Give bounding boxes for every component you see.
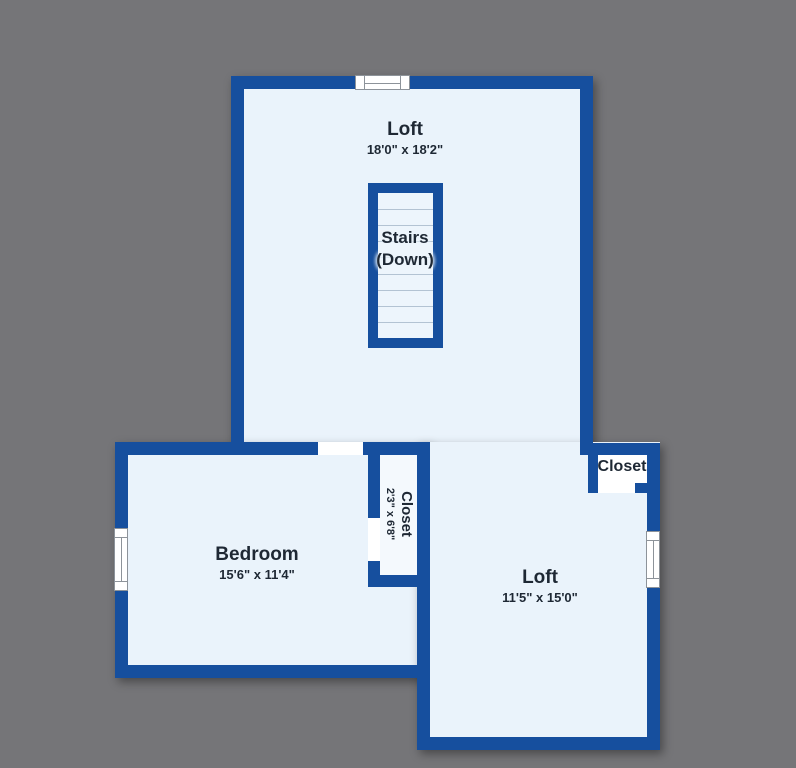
- window-cap-line: [647, 578, 659, 579]
- window-cap-line: [115, 581, 127, 582]
- bedroom-north-wall: [115, 442, 428, 455]
- window-pane-line: [364, 83, 401, 84]
- top-loft-label: Loft 18'0" x 18'2": [305, 118, 505, 158]
- door-opening-bedroom-closet: [368, 518, 380, 561]
- window-cap-line: [400, 76, 401, 89]
- bedroom-name: Bedroom: [157, 543, 357, 566]
- window-symbol-north: [355, 75, 410, 90]
- stair-tread-line: [378, 209, 433, 210]
- window-cap-line: [364, 76, 365, 89]
- window-pane-line: [653, 540, 654, 579]
- bedroom-closet-name: Closet: [397, 464, 415, 564]
- window-cap-line: [115, 537, 127, 538]
- bedroom-rightloft-divider-wall: [417, 442, 430, 750]
- stair-tread-line: [378, 274, 433, 275]
- bedroom-south-wall: [115, 665, 430, 678]
- stairs-label: Stairs (Down): [345, 227, 465, 271]
- top-loft-west-wall: [231, 76, 244, 455]
- window-cap-line: [647, 540, 659, 541]
- bedroom-closet-dimensions: 2'3" x 6'8": [383, 464, 397, 564]
- top-loft-name: Loft: [305, 118, 505, 141]
- window-symbol-bedroom-west: [114, 528, 128, 591]
- door-opening-corner-closet: [598, 483, 635, 493]
- stair-tread-line: [378, 225, 433, 226]
- stair-tread-line: [378, 306, 433, 307]
- top-loft-east-wall: [580, 76, 593, 455]
- right-loft-dimensions: 11'5" x 15'0": [440, 589, 640, 606]
- floor-plan: Loft 18'0" x 18'2" Stairs (Down) Bedroom…: [0, 0, 796, 768]
- top-loft-north-wall: [231, 76, 593, 89]
- right-loft-name: Loft: [440, 566, 640, 589]
- right-loft-south-wall: [417, 737, 660, 750]
- bedroom-dimensions: 15'6" x 11'4": [157, 566, 357, 583]
- window-symbol-loft-east: [646, 531, 660, 588]
- corner-closet-label: Closet: [572, 457, 672, 476]
- bedroom-closet-label: Closet 2'3" x 6'8": [381, 464, 415, 564]
- stair-tread-line: [378, 290, 433, 291]
- door-opening-loft-to-bedroom: [318, 442, 363, 455]
- window-pane-line: [121, 537, 122, 582]
- stairs-label-line2: (Down): [345, 249, 465, 271]
- stairs-label-line1: Stairs: [345, 227, 465, 249]
- corner-closet-name: Closet: [572, 457, 672, 476]
- bedroom-label: Bedroom 15'6" x 11'4": [157, 543, 357, 583]
- stair-tread-line: [378, 322, 433, 323]
- bedroom-closet-south-wall: [368, 575, 430, 587]
- top-loft-dimensions: 18'0" x 18'2": [305, 141, 505, 158]
- right-loft-label: Loft 11'5" x 15'0": [440, 566, 640, 606]
